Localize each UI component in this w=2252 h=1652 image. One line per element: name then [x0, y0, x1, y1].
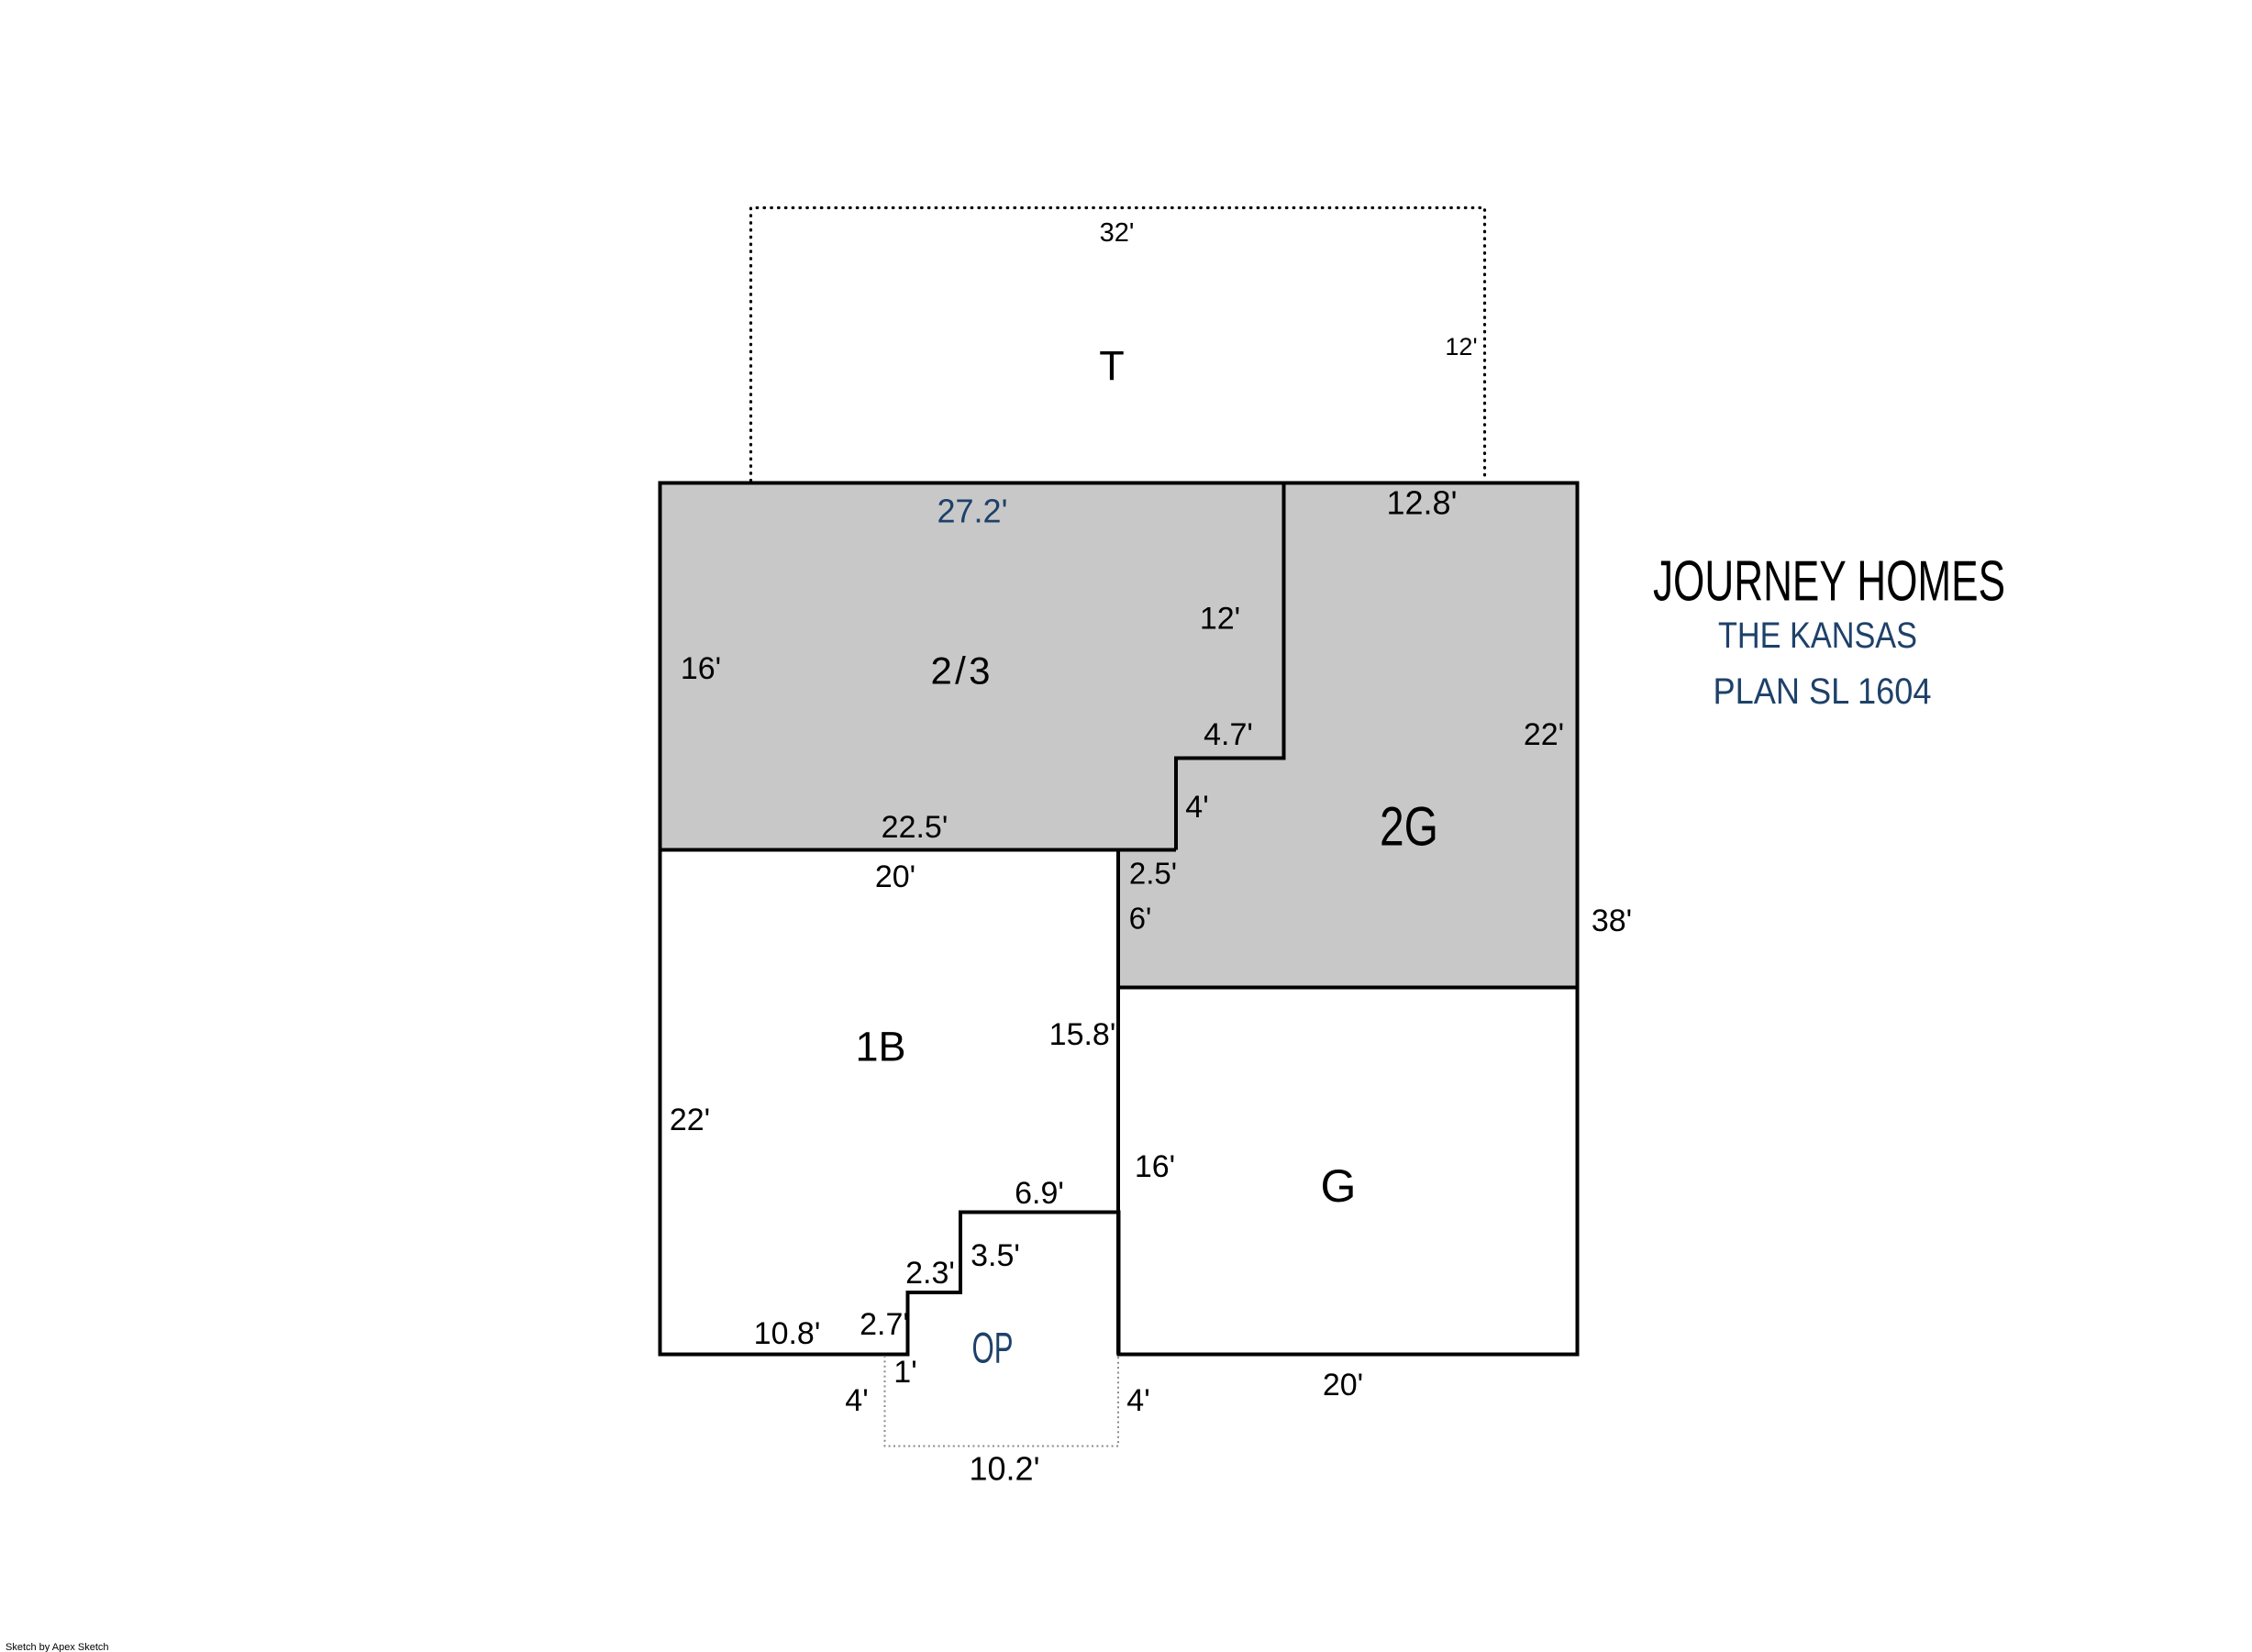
svg-text:OP: OP	[972, 1324, 1014, 1372]
svg-text:16': 16'	[681, 651, 721, 686]
svg-text:4.7': 4.7'	[1204, 717, 1253, 752]
svg-text:16': 16'	[1135, 1149, 1175, 1184]
svg-text:2.5': 2.5'	[1129, 857, 1177, 891]
svg-text:22': 22'	[1524, 717, 1564, 752]
svg-text:1B: 1B	[855, 1024, 905, 1070]
svg-text:10.8': 10.8'	[754, 1316, 821, 1351]
svg-text:12': 12'	[1445, 333, 1477, 360]
svg-text:12.8': 12.8'	[1387, 484, 1458, 522]
svg-text:1': 1'	[893, 1355, 916, 1390]
svg-text:JOURNEY HOMES: JOURNEY HOMES	[1653, 550, 2005, 614]
svg-text:Sketch by Apex Sketch: Sketch by Apex Sketch	[6, 1642, 109, 1652]
svg-text:6.9': 6.9'	[1015, 1176, 1064, 1211]
svg-text:32': 32'	[1100, 218, 1135, 248]
svg-text:2.7': 2.7'	[860, 1307, 909, 1342]
svg-text:4': 4'	[1185, 790, 1208, 825]
svg-text:PLAN SL 1604: PLAN SL 1604	[1714, 671, 1932, 712]
svg-text:T: T	[1099, 343, 1125, 390]
svg-text:20': 20'	[1323, 1368, 1363, 1403]
svg-text:27.2': 27.2'	[937, 493, 1008, 530]
svg-text:G: G	[1321, 1160, 1357, 1212]
svg-text:4': 4'	[1126, 1383, 1149, 1418]
svg-text:THE KANSAS: THE KANSAS	[1718, 615, 1917, 656]
svg-text:4': 4'	[845, 1383, 868, 1418]
svg-text:38': 38'	[1592, 904, 1632, 938]
svg-text:20': 20'	[875, 859, 915, 894]
svg-text:12': 12'	[1200, 602, 1240, 637]
svg-text:6': 6'	[1129, 902, 1152, 936]
svg-text:2/3: 2/3	[931, 649, 991, 693]
svg-text:15.8': 15.8'	[1049, 1017, 1116, 1052]
svg-text:22': 22'	[670, 1103, 710, 1137]
svg-text:3.5': 3.5'	[971, 1238, 1020, 1273]
svg-text:22.5': 22.5'	[882, 810, 949, 845]
svg-text:10.2': 10.2'	[970, 1450, 1040, 1488]
svg-text:2G: 2G	[1380, 796, 1438, 858]
svg-text:2.3': 2.3'	[905, 1256, 955, 1291]
